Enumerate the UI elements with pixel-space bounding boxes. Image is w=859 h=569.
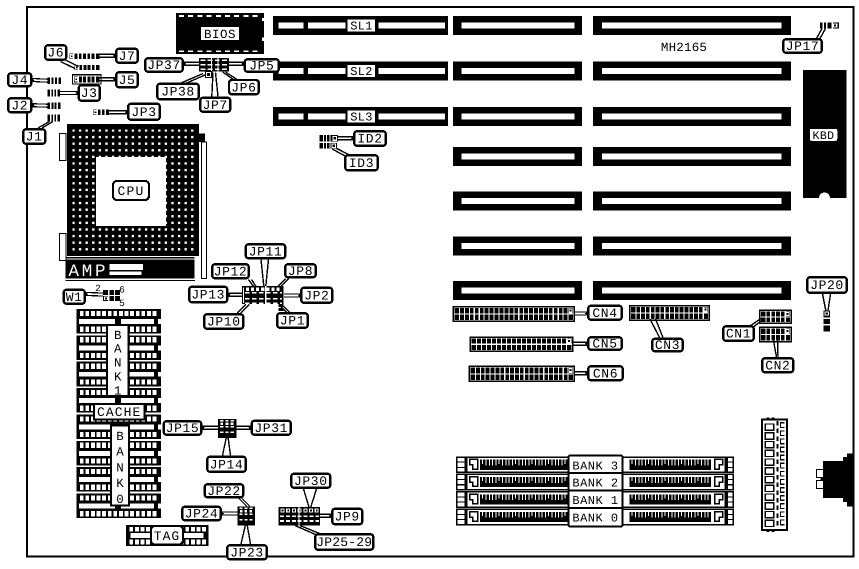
- svg-text:5: 5: [119, 298, 125, 309]
- svg-text:MH2165: MH2165: [661, 41, 707, 55]
- svg-text:N: N: [114, 357, 122, 371]
- svg-text:J2: J2: [11, 99, 28, 114]
- svg-text:JP5: JP5: [249, 59, 274, 74]
- svg-text:CN2: CN2: [765, 358, 790, 373]
- svg-text:JP6: JP6: [231, 80, 256, 95]
- svg-text:SL1: SL1: [350, 20, 373, 34]
- svg-text:JP25-29: JP25-29: [316, 535, 372, 550]
- svg-text:CACHE: CACHE: [97, 405, 142, 420]
- svg-text:6: 6: [119, 285, 125, 296]
- svg-text:SL3: SL3: [350, 111, 373, 125]
- svg-text:JP14: JP14: [210, 457, 244, 472]
- svg-text:JP2: JP2: [304, 288, 329, 303]
- svg-text:B: B: [114, 329, 122, 343]
- svg-text:JP20: JP20: [810, 278, 844, 293]
- svg-text:CN6: CN6: [593, 366, 618, 381]
- svg-text:A: A: [114, 343, 122, 357]
- svg-text:SL2: SL2: [350, 65, 373, 79]
- svg-text:JP17: JP17: [786, 39, 820, 54]
- svg-text:A: A: [116, 446, 124, 460]
- svg-text:JP7: JP7: [203, 98, 228, 113]
- svg-text:BIOS: BIOS: [204, 28, 236, 42]
- svg-text:J5: J5: [119, 73, 136, 88]
- svg-text:BANK 2: BANK 2: [572, 477, 618, 491]
- svg-text:J4: J4: [11, 73, 28, 88]
- svg-text:JP10: JP10: [207, 315, 241, 330]
- svg-text:K: K: [116, 477, 124, 491]
- svg-text:JP12: JP12: [214, 264, 248, 279]
- svg-text:BANK 0: BANK 0: [572, 512, 618, 526]
- svg-text:CN1: CN1: [726, 327, 751, 342]
- svg-text:JP3: JP3: [131, 105, 156, 120]
- svg-text:JP38: JP38: [161, 85, 195, 100]
- svg-text:JP31: JP31: [254, 421, 288, 436]
- svg-text:CN5: CN5: [592, 337, 617, 352]
- svg-text:AMP: AMP: [69, 262, 106, 282]
- svg-text:K: K: [114, 371, 122, 385]
- svg-text:JP15: JP15: [166, 421, 200, 436]
- svg-text:J7: J7: [119, 49, 136, 64]
- svg-text:JP22: JP22: [207, 484, 241, 499]
- svg-text:CPU: CPU: [117, 184, 144, 199]
- svg-text:W1: W1: [66, 290, 83, 305]
- svg-text:J3: J3: [81, 86, 98, 101]
- svg-text:ID3: ID3: [349, 156, 374, 171]
- svg-text:JP37: JP37: [147, 58, 181, 73]
- svg-text:1: 1: [114, 384, 122, 398]
- svg-text:ID2: ID2: [357, 132, 382, 147]
- svg-text:JP1: JP1: [280, 314, 305, 329]
- svg-text:JP8: JP8: [288, 264, 313, 279]
- svg-text:JP13: JP13: [191, 288, 225, 303]
- svg-text:JP24: JP24: [185, 507, 219, 522]
- svg-text:N: N: [116, 461, 124, 475]
- svg-text:CN4: CN4: [592, 306, 617, 321]
- svg-text:BANK 1: BANK 1: [572, 494, 618, 508]
- svg-text:JP23: JP23: [230, 546, 264, 561]
- svg-text:JP30: JP30: [294, 474, 328, 489]
- svg-text:J1: J1: [26, 130, 43, 145]
- svg-text:KBD: KBD: [813, 130, 835, 143]
- svg-text:BANK 3: BANK 3: [572, 459, 618, 473]
- svg-text:TAG: TAG: [154, 529, 180, 544]
- svg-text:JP9: JP9: [335, 510, 360, 525]
- svg-text:JP11: JP11: [249, 244, 283, 259]
- svg-text:CN3: CN3: [655, 338, 680, 353]
- svg-text:J6: J6: [47, 46, 64, 61]
- svg-text:0: 0: [116, 493, 124, 507]
- svg-text:B: B: [116, 430, 124, 444]
